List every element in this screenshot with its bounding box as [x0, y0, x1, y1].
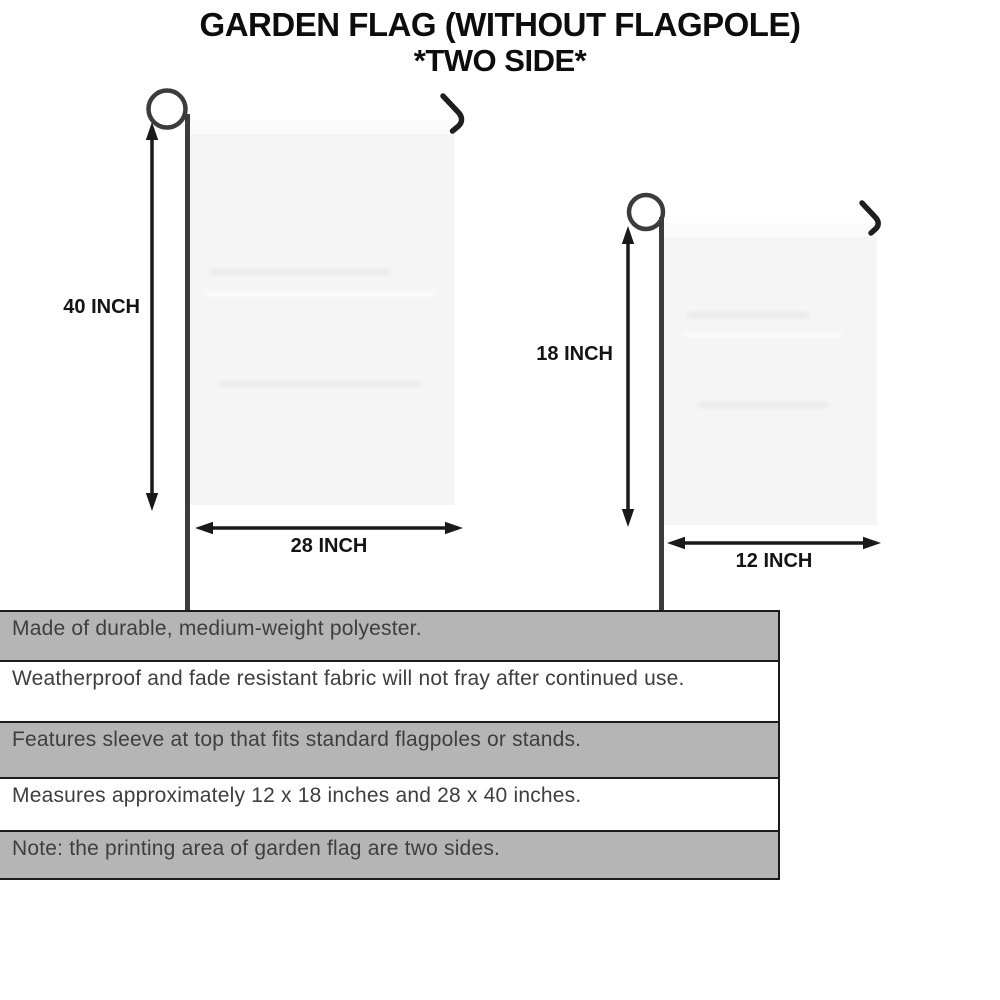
flag-large: [190, 120, 455, 505]
feature-row: Measures approximately 12 x 18 inches an…: [0, 777, 780, 832]
feature-text: Note: the printing area of garden flag a…: [12, 837, 500, 860]
arrow-40-inch: [146, 122, 158, 511]
arrow-18-inch: [622, 226, 634, 527]
flagpole-small-loop-icon: [629, 195, 663, 229]
flag-small: [663, 223, 877, 525]
height-label-small: 18 INCH: [513, 343, 613, 366]
flag-wrinkle: [698, 403, 828, 407]
feature-row: Features sleeve at top that fits standar…: [0, 721, 780, 779]
page-title: GARDEN FLAG (WITHOUT FLAGPOLE) *TWO SIDE…: [0, 6, 1000, 78]
height-label-large: 40 INCH: [30, 296, 140, 319]
feature-text: Features sleeve at top that fits standar…: [12, 728, 581, 751]
title-line2: *TWO SIDE*: [0, 44, 1000, 78]
flag-wrinkle: [688, 313, 808, 317]
garden-flag-infographic: GARDEN FLAG (WITHOUT FLAGPOLE) *TWO SIDE…: [0, 0, 1000, 1000]
feature-row: Made of durable, medium-weight polyester…: [0, 610, 780, 662]
flagpole-large: [149, 91, 188, 611]
flagpole-small: [629, 195, 663, 610]
feature-text: Made of durable, medium-weight polyester…: [12, 617, 422, 640]
features-table: Made of durable, medium-weight polyester…: [0, 610, 780, 880]
width-label-small: 12 INCH: [674, 550, 874, 573]
title-line1: GARDEN FLAG (WITHOUT FLAGPOLE): [0, 6, 1000, 44]
flag-wrinkle: [210, 270, 390, 274]
arrow-12-inch: [667, 537, 881, 549]
flag-wrinkle: [205, 292, 435, 296]
flag-small-sleeve: [663, 223, 877, 237]
flag-large-sleeve: [190, 120, 455, 134]
feature-text: Measures approximately 12 x 18 inches an…: [12, 784, 581, 807]
feature-row: Note: the printing area of garden flag a…: [0, 830, 780, 880]
arrow-28-inch: [195, 522, 463, 534]
feature-row: Weatherproof and fade resistant fabric w…: [0, 660, 780, 723]
flag-wrinkle: [220, 382, 420, 386]
flagpole-large-loop-icon: [149, 91, 186, 128]
width-label-large: 28 INCH: [229, 535, 429, 558]
feature-text: Weatherproof and fade resistant fabric w…: [12, 667, 685, 690]
flag-wrinkle: [683, 333, 843, 337]
